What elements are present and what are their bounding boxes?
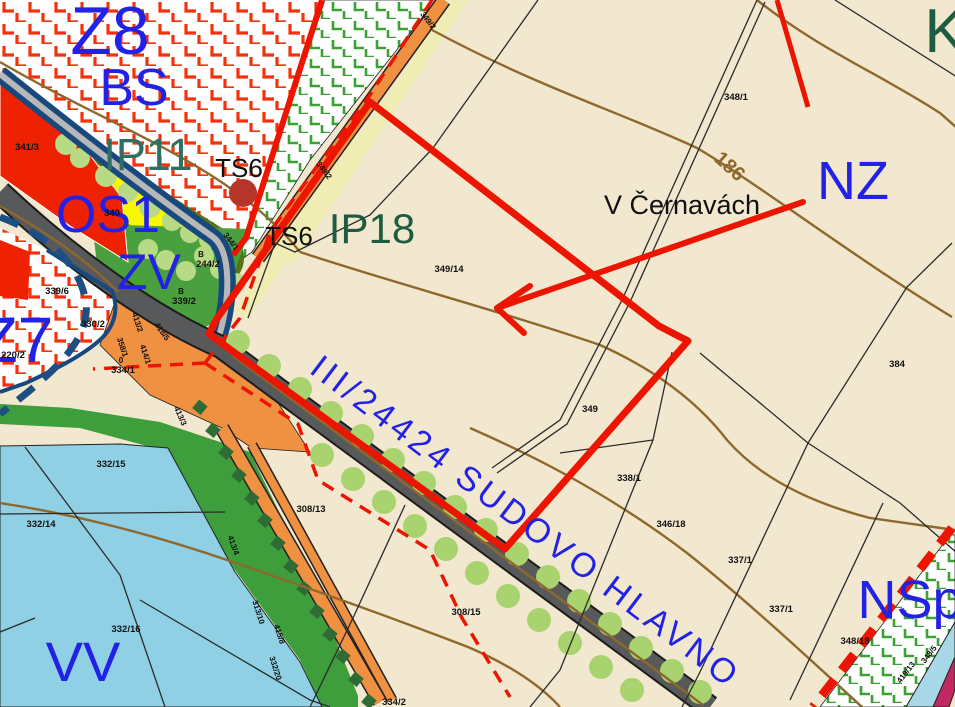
parcel-349-14: 349/14: [434, 264, 464, 275]
parcel-332-15: 332/15: [96, 459, 126, 470]
parcel-349: 349: [582, 404, 598, 415]
parcel-330-2: 330/2: [81, 319, 105, 330]
zone-label-k: K: [924, 0, 955, 66]
parcel-340: 340: [104, 208, 120, 219]
parcel-332-14: 332/14: [26, 519, 56, 530]
zone-label-vv: VV: [46, 630, 121, 693]
parcel-308-13: 308/13: [296, 504, 325, 515]
zoning-map-svg: Z8BSIP11OS1ZVZ7IP18NZKNSpVVTS6TS6V Černa…: [0, 0, 955, 707]
parcel-334-2: 334/2: [382, 697, 406, 707]
parcel-348-18: 348/18: [840, 636, 869, 647]
parcel-220-2: 220/2: [1, 350, 25, 361]
parcel-332-16: 332/16: [111, 624, 140, 635]
ts6-label-1: TS6: [215, 153, 263, 183]
parcel-348-1: 348/1: [724, 92, 748, 103]
parcel-384: 384: [889, 359, 906, 370]
zone-label-bs: BS: [99, 59, 168, 117]
ts6-label-2: TS6: [265, 221, 313, 251]
parcel-339-2: 339/2: [172, 296, 196, 307]
zone-label-nz: NZ: [817, 151, 889, 211]
zoning-map-canvas[interactable]: Z8BSIP11OS1ZVZ7IP18NZKNSpVVTS6TS6V Černa…: [0, 0, 955, 707]
symbol-b-1: B: [178, 287, 184, 296]
place-name-label: V Černavách: [604, 189, 760, 220]
parcel-338-1: 338/1: [617, 473, 641, 484]
parcel-341-3: 341/3: [15, 142, 39, 153]
zone-label-ip18: IP18: [329, 205, 415, 252]
parcel-346-18: 346/18: [656, 519, 685, 530]
zone-label-nsp: NSp: [857, 570, 955, 630]
symbol-b-2: B: [198, 250, 204, 259]
ts6-transformer-circle: [229, 179, 257, 207]
zone-label-ip11: IP11: [103, 129, 192, 180]
parcel-334-1: 334/1: [111, 365, 135, 376]
zone-label-zv: ZV: [117, 244, 182, 300]
zone-label-z7: Z7: [0, 304, 53, 376]
parcel-337-1b: 337/1: [769, 604, 793, 615]
parcel-337-1: 337/1: [728, 555, 752, 566]
parcel-244-2: 244/2: [196, 259, 220, 270]
parcel-339-6: 339/6: [45, 286, 69, 297]
parcel-308-15: 308/15: [451, 607, 481, 618]
